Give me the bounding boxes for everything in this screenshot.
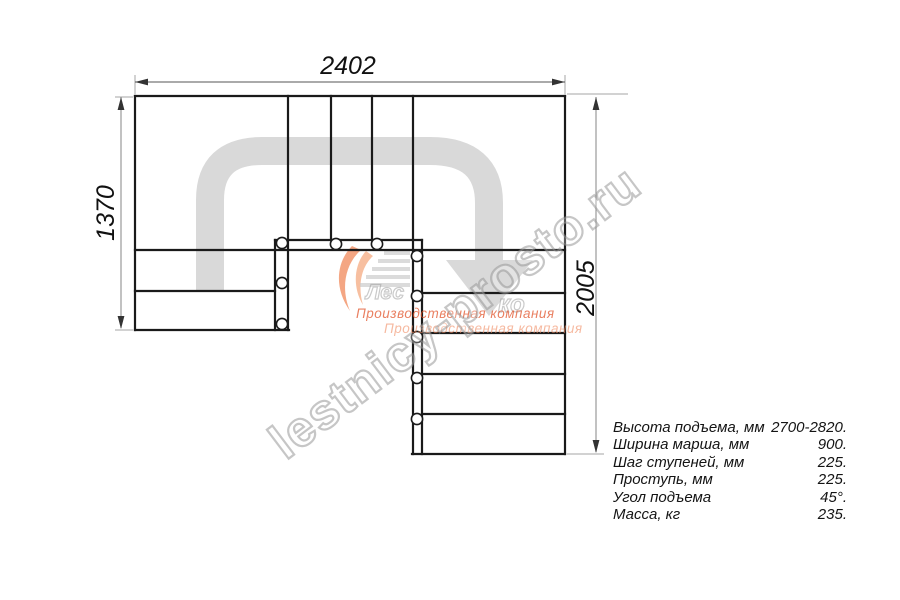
dim-width-label: 2402 [293,53,403,79]
spec-value: 900. [818,436,847,453]
dim-arrow-icon [118,97,125,110]
baluster-circle [276,237,287,248]
spec-value: 235. [818,506,847,523]
baluster-circle [276,277,287,288]
logo-name-fragment: Лес [366,281,404,305]
dim-arrow-icon [135,79,148,86]
spec-label: Масса, кг [613,506,680,523]
walk-direction-path [210,151,489,291]
spec-row: Высота подъема, мм 2700-2820. [613,419,847,436]
baluster-circle [411,372,422,383]
baluster-circle [411,413,422,424]
spec-value: 225. [818,454,847,471]
dim-arrow-icon [552,79,565,86]
dim-arrow-icon [593,97,600,110]
spec-row: Проступь, мм 225. [613,471,847,488]
spec-row: Ширина марша, мм 900. [613,436,847,453]
spec-table: Высота подъема, мм 2700-2820. Ширина мар… [613,419,847,523]
staircase-plan-drawing: 2402 1370 2005 Лес ко Производственная к… [0,0,900,600]
spec-value: 2700-2820. [771,419,847,436]
spec-label: Проступь, мм [613,471,713,488]
dim-arrow-icon [118,316,125,329]
logo-slogan-line: Производственная компания [356,306,555,321]
logo-slogan-line: Производственная компания [384,321,583,336]
spec-row: Масса, кг 235. [613,506,847,523]
spec-label: Ширина марша, мм [613,436,749,453]
spec-value: 45°. [820,489,847,506]
baluster-circle [371,238,382,249]
baluster-circle [411,250,422,261]
dim-arrow-icon [593,440,600,453]
spec-label: Высота подъема, мм [613,419,765,436]
spec-label: Угол подъема [613,489,711,506]
spec-row: Шаг ступеней, мм 225. [613,454,847,471]
dim-height-left-label: 1370 [93,158,119,268]
baluster-circle [330,238,341,249]
spec-label: Шаг ступеней, мм [613,454,744,471]
baluster-circle [276,318,287,329]
spec-value: 225. [818,471,847,488]
baluster-circle [411,290,422,301]
spec-row: Угол подъема 45°. [613,489,847,506]
